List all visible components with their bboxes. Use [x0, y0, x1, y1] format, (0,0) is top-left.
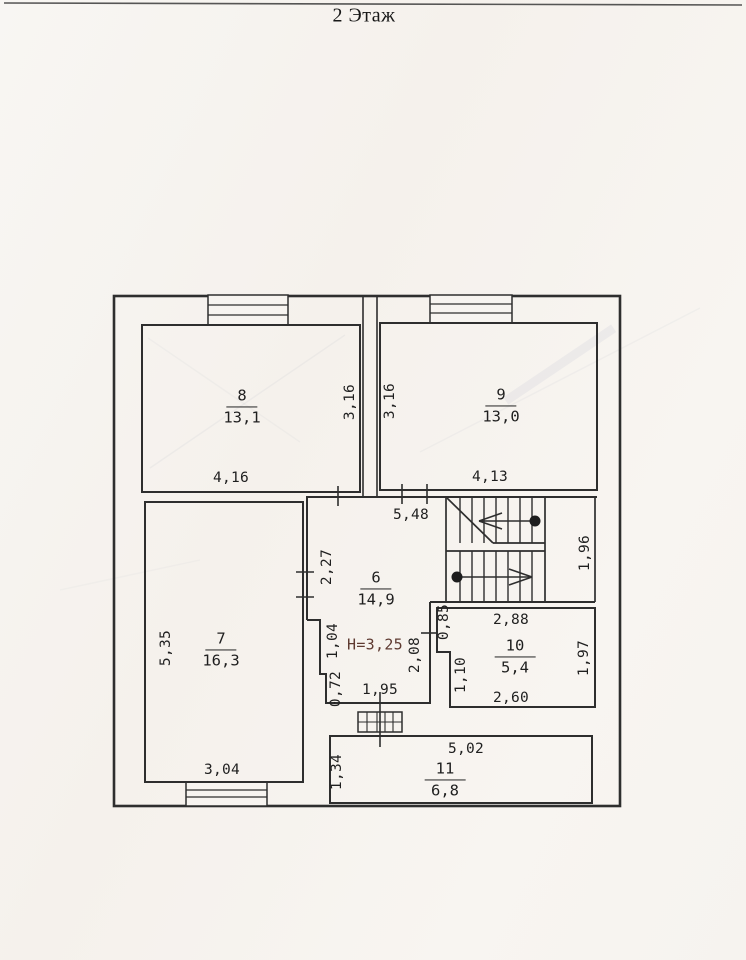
stair-up-arrow [479, 513, 541, 529]
room-6-area: 14,9 [357, 590, 394, 609]
dim-room8-depth: 3,16 [343, 384, 358, 420]
dim-room10-right-height: 1,97 [577, 640, 592, 676]
room-7-number: 7 [205, 630, 236, 650]
room-8-label: 8 13,1 [223, 387, 260, 426]
room-11-number: 11 [425, 760, 466, 780]
dim-room11-width: 5,02 [448, 742, 484, 757]
dim-hall-left-middle: 1,04 [326, 623, 341, 659]
room-11-label: 11 6,8 [425, 760, 466, 799]
dim-room8-width: 4,16 [213, 471, 249, 486]
room-9-number: 9 [485, 386, 516, 406]
dim-stair-landing-width: 1,96 [578, 535, 593, 571]
dim-room11-height: 1,34 [330, 754, 345, 790]
dim-room9-depth: 3,16 [383, 383, 398, 419]
room-8-number: 8 [226, 387, 257, 407]
dim-hall-top-width: 5,48 [393, 508, 429, 523]
room-9-area: 13,0 [482, 407, 519, 426]
room-10-area: 5,4 [501, 658, 529, 677]
scanned-floor-plan-page: 2 Этаж 8 13,1 9 13,0 6 14,9 7 16,3 10 5,… [0, 0, 746, 960]
room-9-label: 9 13,0 [482, 386, 519, 425]
room-11-area: 6,8 [431, 781, 459, 800]
wall-column-between-8-9 [363, 296, 377, 497]
dim-room10-bottom-width: 2,60 [493, 691, 529, 706]
dim-hall-left-lower: 0,72 [329, 671, 344, 707]
dim-hall-bottom-width: 1,95 [362, 683, 398, 698]
window-room9 [430, 295, 512, 323]
dim-room10-left-height: 1,10 [454, 657, 469, 693]
window-room7 [186, 782, 267, 806]
upper-flight-treads [460, 497, 532, 543]
ceiling-height-note: H=3,25 [347, 638, 403, 653]
dim-room7-height: 5,35 [159, 630, 174, 666]
window-room8 [208, 295, 288, 325]
page-title: 2 Этаж [333, 5, 396, 28]
room-10-number: 10 [495, 637, 536, 657]
room-8-area: 13,1 [223, 408, 260, 427]
dim-room7-width: 3,04 [204, 763, 240, 778]
room-7-area: 16,3 [202, 651, 239, 670]
balcony-window [358, 692, 402, 747]
staircase [446, 497, 595, 602]
dim-room9-width: 4,13 [472, 470, 508, 485]
floor-plan-drawing [0, 0, 746, 960]
room-6-number: 6 [360, 569, 391, 589]
dim-room10-top-width: 2,88 [493, 613, 529, 628]
dim-hall-left-upper: 2,27 [320, 549, 335, 585]
dim-hall-right-height: 2,08 [408, 637, 423, 673]
room-6-label: 6 14,9 [357, 569, 394, 608]
room-10-label: 10 5,4 [495, 637, 536, 676]
dim-room10-notch: 0,85 [437, 604, 452, 640]
room-7-label: 7 16,3 [202, 630, 239, 669]
